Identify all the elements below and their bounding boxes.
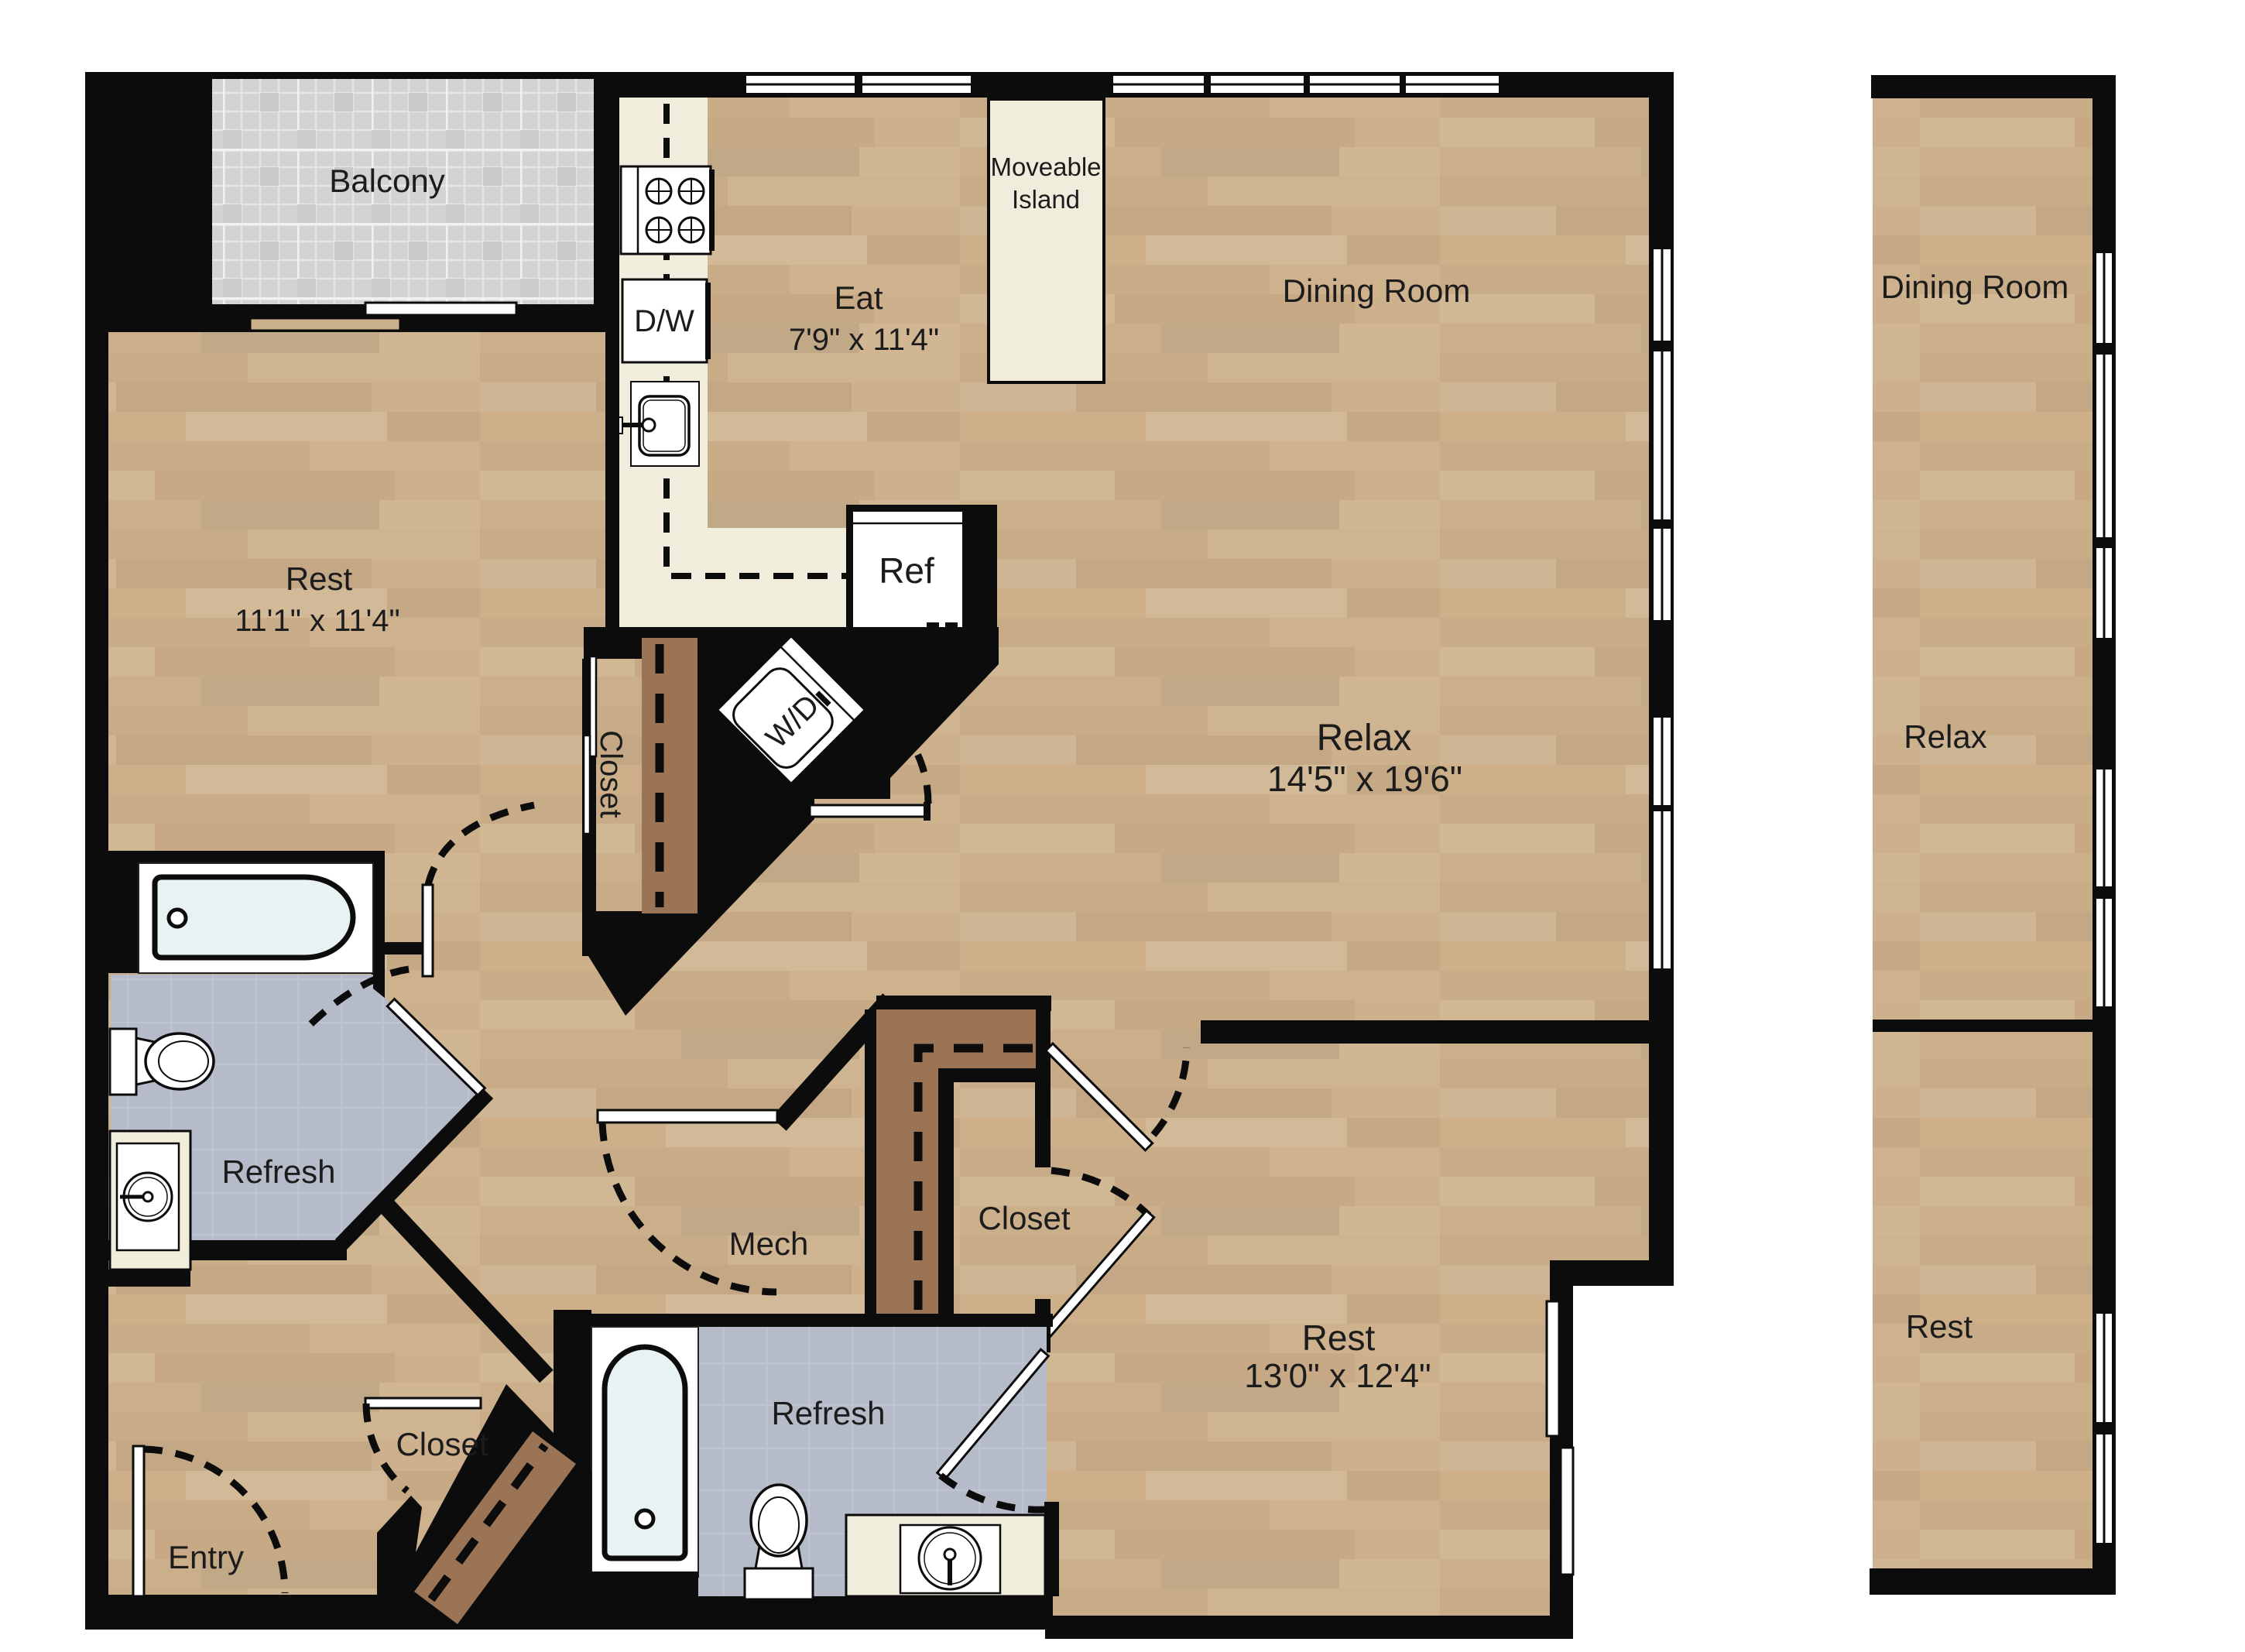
svg-text:Moveable: Moveable	[990, 153, 1101, 181]
svg-text:14'5" x 19'6": 14'5" x 19'6"	[1267, 759, 1462, 799]
svg-text:Refresh: Refresh	[771, 1395, 885, 1431]
svg-text:Entry: Entry	[168, 1539, 244, 1575]
svg-text:Relax: Relax	[1317, 718, 1412, 759]
svg-text:Relax: Relax	[1904, 718, 1986, 755]
svg-text:Rest: Rest	[1302, 1318, 1376, 1358]
svg-text:Dining Room: Dining Room	[1283, 272, 1471, 309]
svg-text:Island: Island	[1012, 185, 1080, 214]
svg-text:13'0" x 12'4": 13'0" x 12'4"	[1244, 1357, 1431, 1395]
svg-text:Balcony: Balcony	[329, 163, 444, 199]
svg-text:Rest: Rest	[1906, 1308, 1973, 1345]
svg-text:Closet: Closet	[594, 730, 628, 817]
svg-text:Rest: Rest	[286, 560, 353, 597]
svg-text:Eat: Eat	[834, 279, 883, 316]
svg-text:D/W: D/W	[634, 304, 694, 338]
svg-text:Ref: Ref	[879, 550, 934, 591]
svg-text:7'9" x 11'4": 7'9" x 11'4"	[789, 323, 939, 357]
svg-text:Refresh: Refresh	[221, 1153, 335, 1190]
svg-text:11'1" x 11'4": 11'1" x 11'4"	[235, 604, 399, 638]
svg-text:Closet: Closet	[396, 1426, 488, 1462]
svg-text:Mech: Mech	[729, 1225, 809, 1262]
svg-text:Closet: Closet	[978, 1200, 1070, 1236]
svg-text:Dining Room: Dining Room	[1881, 269, 2069, 305]
